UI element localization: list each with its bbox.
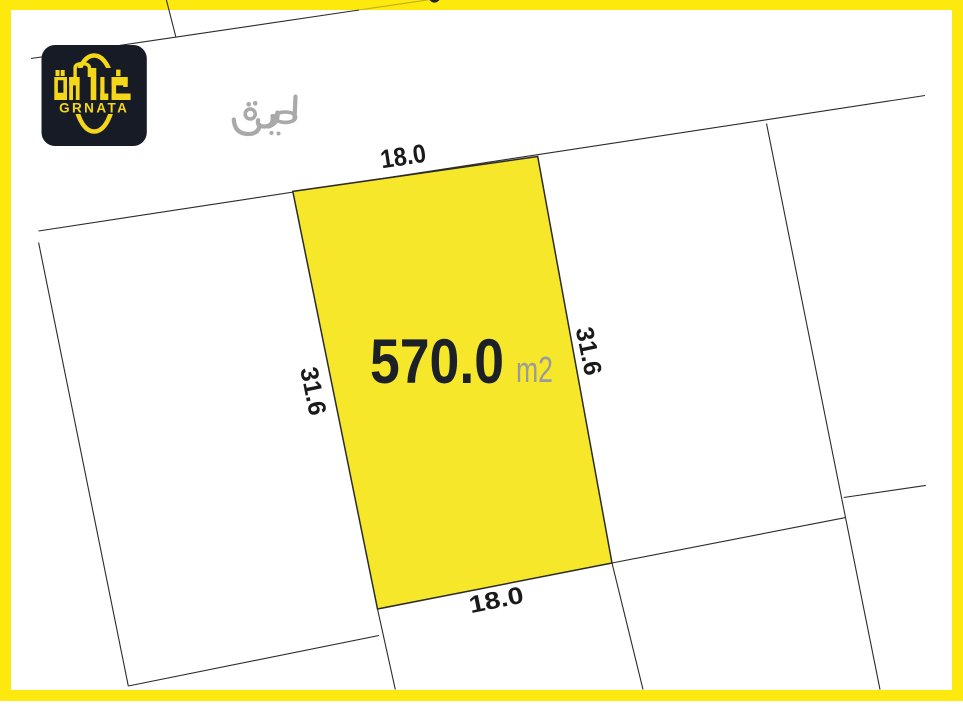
svg-text:570.0: 570.0 — [370, 327, 504, 397]
svg-text:m2: m2 — [516, 349, 553, 390]
svg-text:GRNATA: GRNATA — [59, 101, 129, 116]
